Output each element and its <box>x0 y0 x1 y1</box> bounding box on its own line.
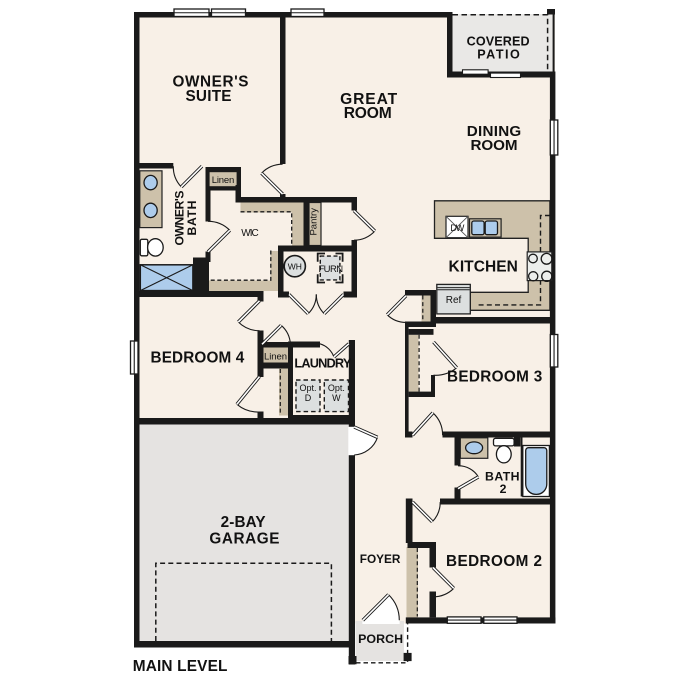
svg-text:Linen: Linen <box>212 175 235 186</box>
svg-text:LAUNDRY: LAUNDRY <box>294 355 351 370</box>
svg-text:FURN: FURN <box>318 264 343 275</box>
svg-text:Linen: Linen <box>264 352 287 363</box>
svg-text:MAIN LEVEL: MAIN LEVEL <box>133 658 228 675</box>
svg-text:W: W <box>332 393 341 403</box>
svg-text:PATIO: PATIO <box>477 47 520 61</box>
svg-text:Pantry: Pantry <box>309 208 320 236</box>
svg-text:FOYER: FOYER <box>360 552 401 566</box>
svg-text:COVERED: COVERED <box>467 35 530 49</box>
svg-text:ROOM: ROOM <box>344 105 392 122</box>
svg-text:BEDROOM 2: BEDROOM 2 <box>446 553 542 570</box>
svg-text:BEDROOM 3: BEDROOM 3 <box>447 369 542 386</box>
svg-text:PORCH: PORCH <box>358 632 403 646</box>
svg-text:D: D <box>305 393 312 403</box>
svg-text:Opt.: Opt. <box>328 383 345 393</box>
svg-text:BEDROOM 4: BEDROOM 4 <box>151 349 245 366</box>
svg-text:2: 2 <box>500 482 507 496</box>
svg-text:WIC: WIC <box>241 228 259 239</box>
svg-text:Ref: Ref <box>446 295 462 306</box>
svg-text:GARAGE: GARAGE <box>209 531 279 548</box>
svg-text:KITCHEN: KITCHEN <box>449 258 518 275</box>
svg-text:DW: DW <box>450 223 465 233</box>
svg-text:Opt.: Opt. <box>299 383 316 393</box>
svg-text:WH: WH <box>288 261 302 271</box>
svg-text:ROOM: ROOM <box>471 137 518 154</box>
svg-text:SUITE: SUITE <box>186 88 232 105</box>
svg-text:BATH: BATH <box>185 201 199 236</box>
svg-text:2-BAY: 2-BAY <box>221 514 266 531</box>
